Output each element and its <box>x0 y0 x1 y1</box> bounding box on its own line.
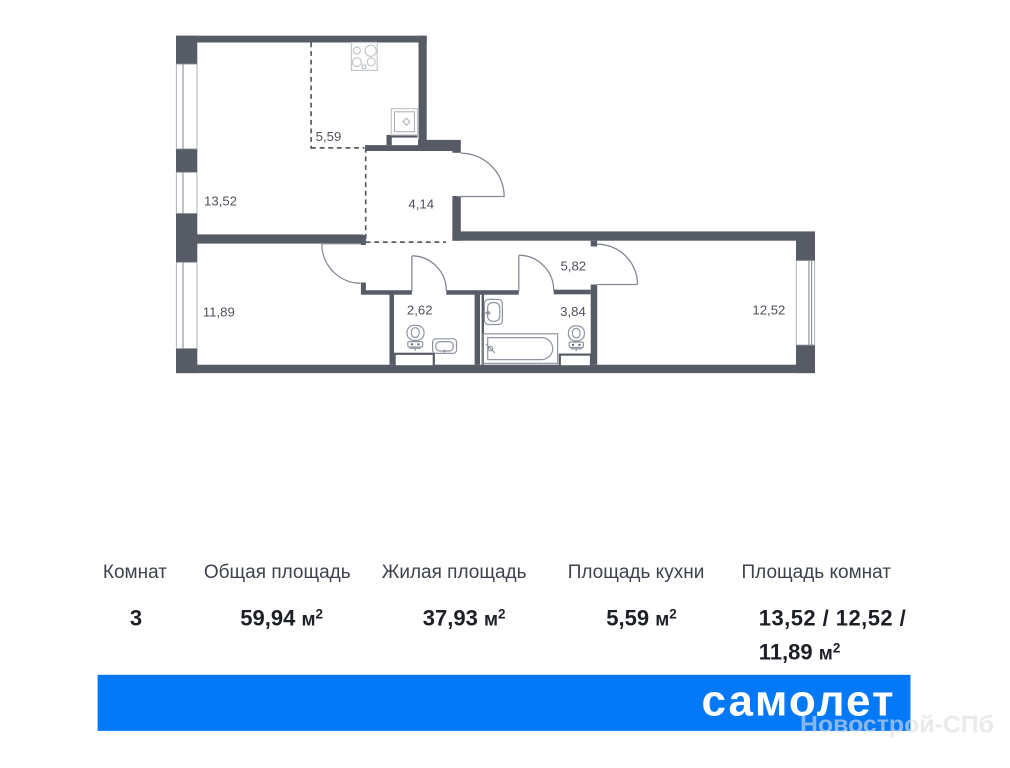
svg-text:5,59: 5,59 <box>316 129 342 144</box>
svg-text:59,94 м2: 59,94 м2 <box>240 606 323 631</box>
svg-text:Площадь комнат: Площадь комнат <box>742 562 892 583</box>
svg-text:11,89 м2: 11,89 м2 <box>759 640 841 665</box>
svg-text:Комнат: Комнат <box>103 562 167 583</box>
svg-text:13,52: 13,52 <box>204 193 237 208</box>
svg-text:3: 3 <box>130 606 142 631</box>
svg-text:4,14: 4,14 <box>408 196 434 211</box>
svg-text:5,59 м2: 5,59 м2 <box>606 606 677 631</box>
svg-text:3,84: 3,84 <box>560 304 586 319</box>
svg-text:2,62: 2,62 <box>407 303 433 318</box>
svg-text:12,52: 12,52 <box>752 302 785 317</box>
svg-text:Новострой-СПб: Новострой-СПб <box>800 712 994 739</box>
svg-text:13,52 / 12,52 /: 13,52 / 12,52 / <box>759 606 906 631</box>
svg-text:11,89: 11,89 <box>203 305 235 320</box>
svg-text:37,93 м2: 37,93 м2 <box>423 606 506 631</box>
svg-text:Общая площадь: Общая площадь <box>204 562 351 583</box>
svg-text:Жилая площадь: Жилая площадь <box>382 562 527 583</box>
svg-text:Площадь кухни: Площадь кухни <box>568 562 705 583</box>
svg-text:5,82: 5,82 <box>560 259 586 274</box>
